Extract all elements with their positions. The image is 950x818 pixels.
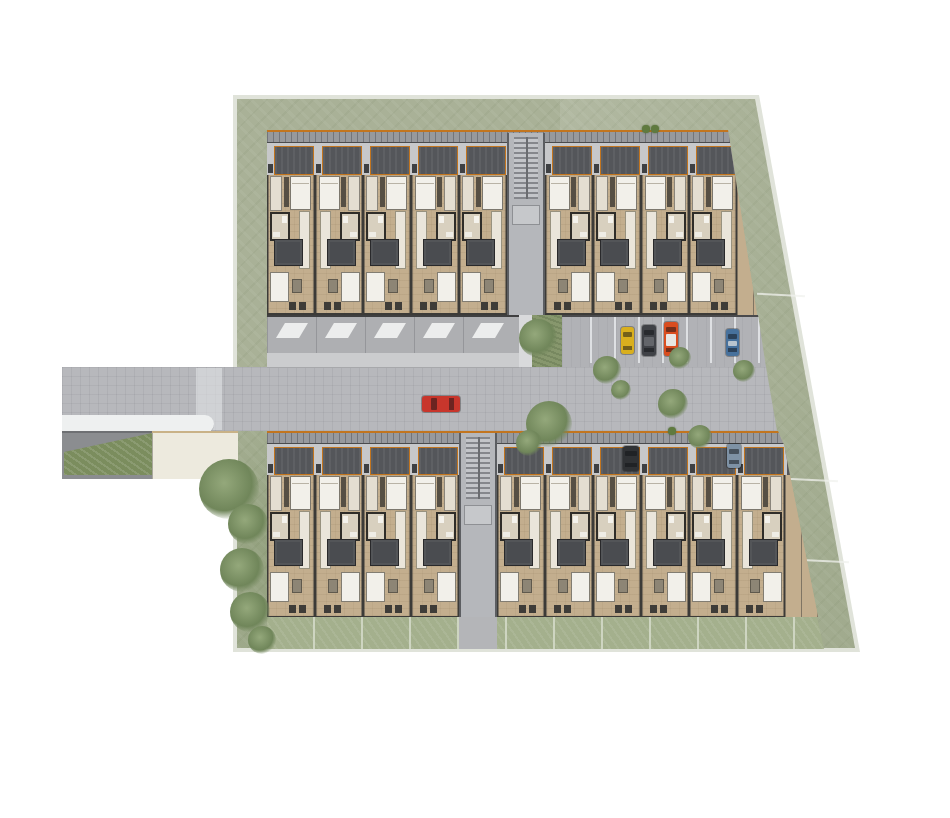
unit-top-strip bbox=[366, 476, 378, 511]
carport-bay-slab bbox=[418, 146, 458, 175]
roof-plant bbox=[642, 125, 650, 133]
unit-chairs bbox=[519, 605, 536, 613]
unit-top-strip bbox=[578, 476, 590, 511]
unit-sofa bbox=[596, 572, 615, 602]
unit-court bbox=[653, 539, 682, 566]
carport-bay bbox=[737, 444, 785, 475]
tree bbox=[519, 319, 557, 357]
unit-wardrobe bbox=[667, 177, 672, 207]
unit-bed bbox=[741, 476, 762, 510]
south-carports bbox=[267, 444, 827, 475]
unit-top-strip bbox=[348, 476, 360, 511]
unit-bed bbox=[386, 176, 407, 210]
rowhouse-unit bbox=[315, 475, 363, 618]
unit-court bbox=[557, 239, 586, 266]
unit-court bbox=[423, 239, 452, 266]
unit-bath bbox=[666, 512, 686, 541]
unit-chairs bbox=[324, 605, 341, 613]
unit-top-strip bbox=[270, 476, 282, 511]
carport-post bbox=[316, 464, 321, 473]
unit-chairs bbox=[289, 302, 306, 310]
unit-chairs bbox=[385, 302, 402, 310]
carport-post bbox=[460, 164, 465, 173]
unit-sofa bbox=[667, 572, 686, 602]
unit-table bbox=[424, 579, 434, 593]
unit-chairs bbox=[420, 605, 437, 613]
carport-bay bbox=[641, 444, 689, 475]
parking-stall-line bbox=[590, 317, 592, 363]
unit-bath bbox=[462, 212, 482, 241]
rowhouse-unit bbox=[641, 175, 689, 315]
unit-chairs bbox=[650, 605, 667, 613]
unit-court bbox=[274, 239, 303, 266]
unit-sofa bbox=[462, 272, 481, 302]
unit-sofa bbox=[500, 572, 519, 602]
parking-car-gray bbox=[642, 325, 656, 356]
unit-top-strip bbox=[462, 176, 474, 211]
unit-court bbox=[423, 539, 452, 566]
unit-court bbox=[370, 239, 399, 266]
unit-wardrobe bbox=[571, 177, 576, 207]
unit-bed bbox=[290, 176, 311, 210]
unit-chairs bbox=[324, 302, 341, 310]
carport-post bbox=[546, 464, 551, 473]
stair-landing bbox=[464, 505, 492, 525]
tree bbox=[220, 548, 264, 592]
unit-top-strip bbox=[770, 476, 782, 511]
carport-bay-slab bbox=[466, 146, 506, 175]
unit-bath bbox=[270, 512, 290, 541]
unit-court bbox=[696, 239, 725, 266]
unit-wardrobe bbox=[514, 477, 519, 507]
unit-court bbox=[600, 539, 629, 566]
rowhouse-unit bbox=[545, 475, 593, 618]
car-windshield bbox=[729, 449, 739, 454]
rowhouse-unit bbox=[315, 175, 363, 315]
unit-wardrobe bbox=[284, 477, 289, 507]
rowhouse-unit bbox=[459, 175, 507, 315]
unit-sofa bbox=[763, 572, 782, 602]
carport-bay-slab bbox=[744, 447, 784, 475]
unit-bed bbox=[712, 476, 733, 510]
unit-table bbox=[328, 579, 338, 593]
unit-top-strip bbox=[500, 476, 512, 511]
carport-post bbox=[594, 464, 599, 473]
carport-car-dark bbox=[623, 446, 639, 471]
rowhouse-unit bbox=[363, 475, 411, 618]
unit-wardrobe bbox=[284, 177, 289, 207]
rowhouse-unit bbox=[545, 175, 593, 315]
carport-bay bbox=[411, 143, 459, 175]
car-rear-glass bbox=[644, 348, 654, 352]
unit-bath bbox=[436, 212, 456, 241]
car-windshield bbox=[728, 334, 737, 339]
unit-bed bbox=[520, 476, 541, 510]
carport-post bbox=[690, 164, 695, 173]
parking-stall-line bbox=[638, 317, 640, 363]
unit-wardrobe bbox=[437, 477, 442, 507]
unit-wardrobe bbox=[437, 177, 442, 207]
unit-sofa bbox=[596, 272, 615, 302]
south-building bbox=[267, 431, 827, 617]
unit-sofa bbox=[366, 572, 385, 602]
unit-chairs bbox=[711, 605, 728, 613]
unit-bed bbox=[482, 176, 503, 210]
unit-bath bbox=[596, 212, 616, 241]
carport-car-blue bbox=[727, 444, 741, 468]
car-roof bbox=[728, 341, 737, 346]
rowhouse-unit bbox=[497, 475, 545, 618]
unit-chairs bbox=[711, 302, 728, 310]
unit-court bbox=[557, 539, 586, 566]
carport-bay-slab bbox=[322, 447, 362, 475]
garage-door bbox=[472, 323, 504, 338]
carport-bay bbox=[315, 143, 363, 175]
unit-top-strip bbox=[578, 176, 590, 211]
unit-bath bbox=[340, 212, 360, 241]
parking-stall-line bbox=[614, 317, 616, 363]
rowhouse-unit bbox=[267, 475, 315, 618]
garage-bay bbox=[365, 317, 414, 355]
carport-post bbox=[498, 464, 503, 473]
unit-sofa bbox=[341, 572, 360, 602]
carport-bay-slab bbox=[274, 146, 314, 175]
carport-bay-slab bbox=[552, 447, 592, 475]
unit-court bbox=[653, 239, 682, 266]
carport-post bbox=[364, 164, 369, 173]
unit-bed bbox=[645, 476, 666, 510]
carport-bay bbox=[459, 143, 507, 175]
unit-bath bbox=[692, 212, 712, 241]
carport-bay bbox=[315, 444, 363, 475]
roof-plant bbox=[651, 125, 659, 133]
unit-bed bbox=[415, 476, 436, 510]
unit-bath bbox=[762, 512, 782, 541]
carport-bay bbox=[267, 444, 315, 475]
unit-table bbox=[522, 579, 532, 593]
car-rear-glass bbox=[729, 460, 739, 464]
south-interior bbox=[267, 475, 827, 618]
unit-court bbox=[466, 239, 495, 266]
unit-table bbox=[618, 579, 628, 593]
tree bbox=[248, 626, 276, 654]
unit-sofa bbox=[692, 272, 711, 302]
unit-wardrobe bbox=[380, 177, 385, 207]
unit-sofa bbox=[366, 272, 385, 302]
parking-car-blue bbox=[726, 329, 739, 356]
unit-bed bbox=[645, 176, 666, 210]
rowhouse-unit bbox=[689, 175, 737, 315]
unit-bath bbox=[340, 512, 360, 541]
carport-bay-slab bbox=[648, 146, 688, 175]
roof-plant bbox=[668, 427, 676, 435]
carport-bay-slab bbox=[322, 146, 362, 175]
unit-bed bbox=[319, 476, 340, 510]
unit-bed bbox=[616, 176, 637, 210]
carport-bay-slab bbox=[552, 146, 592, 175]
north-building bbox=[267, 130, 758, 315]
unit-top-strip bbox=[596, 176, 608, 211]
car-rear-glass bbox=[449, 398, 454, 410]
south-stairwell bbox=[459, 433, 497, 617]
unit-bath bbox=[500, 512, 520, 541]
garage-door bbox=[374, 323, 406, 338]
unit-table bbox=[714, 279, 724, 293]
unit-table bbox=[654, 279, 664, 293]
unit-sofa bbox=[341, 272, 360, 302]
unit-table bbox=[328, 279, 338, 293]
unit-sofa bbox=[437, 272, 456, 302]
north-stairwell bbox=[507, 133, 545, 315]
carport-post bbox=[412, 164, 417, 173]
carport-bay bbox=[363, 143, 411, 175]
garage-bay bbox=[414, 317, 463, 355]
garage-door bbox=[423, 323, 455, 338]
unit-table bbox=[714, 579, 724, 593]
unit-top-strip bbox=[444, 176, 456, 211]
unit-bed bbox=[712, 176, 733, 210]
stair-treads bbox=[514, 137, 538, 199]
garage-door bbox=[276, 323, 308, 338]
unit-top-strip bbox=[674, 176, 686, 211]
unit-chairs bbox=[420, 302, 437, 310]
rowhouse-unit bbox=[411, 475, 459, 618]
unit-table bbox=[484, 279, 494, 293]
unit-chairs bbox=[481, 302, 498, 310]
unit-sofa bbox=[667, 272, 686, 302]
south-garden-path bbox=[459, 617, 497, 649]
unit-table bbox=[558, 279, 568, 293]
unit-bath bbox=[270, 212, 290, 241]
car-rear-glass bbox=[625, 463, 637, 467]
unit-sofa bbox=[571, 572, 590, 602]
car-windshield bbox=[431, 398, 437, 410]
rowhouse-unit bbox=[267, 175, 315, 315]
rowhouse-unit bbox=[641, 475, 689, 618]
garage-door bbox=[325, 323, 357, 338]
unit-wardrobe bbox=[763, 477, 768, 507]
garage-row bbox=[267, 315, 519, 355]
garage-bay bbox=[267, 317, 316, 355]
unit-chairs bbox=[554, 605, 571, 613]
unit-table bbox=[750, 579, 760, 593]
carport-bay bbox=[593, 143, 641, 175]
unit-chairs bbox=[615, 605, 632, 613]
site-plan-canvas bbox=[0, 0, 950, 818]
unit-wardrobe bbox=[571, 477, 576, 507]
unit-wardrobe bbox=[380, 477, 385, 507]
carport-post bbox=[690, 464, 695, 473]
carport-bay bbox=[411, 444, 459, 475]
carport-bay bbox=[267, 143, 315, 175]
car-roof bbox=[644, 337, 654, 346]
carport-bay bbox=[689, 143, 737, 175]
unit-bed bbox=[549, 476, 570, 510]
tree bbox=[669, 347, 691, 369]
unit-bed bbox=[616, 476, 637, 510]
unit-chairs bbox=[385, 605, 402, 613]
carport-bay bbox=[363, 444, 411, 475]
tree bbox=[611, 380, 631, 400]
unit-wardrobe bbox=[341, 477, 346, 507]
unit-bed bbox=[290, 476, 311, 510]
stair-landing bbox=[512, 205, 540, 225]
rear-gardens bbox=[267, 617, 827, 649]
unit-bath bbox=[666, 212, 686, 241]
carport-bay-slab bbox=[418, 447, 458, 475]
parking-stall-line bbox=[710, 317, 712, 363]
unit-wardrobe bbox=[706, 177, 711, 207]
unit-bed bbox=[386, 476, 407, 510]
car-rear-glass bbox=[623, 346, 632, 350]
unit-table bbox=[654, 579, 664, 593]
unit-bath bbox=[366, 512, 386, 541]
unit-bath bbox=[570, 212, 590, 241]
unit-bath bbox=[570, 512, 590, 541]
garage-sidewalk bbox=[267, 353, 519, 368]
unit-wardrobe bbox=[476, 177, 481, 207]
unit-top-strip bbox=[270, 176, 282, 211]
unit-top-strip bbox=[674, 476, 686, 511]
carport-post bbox=[268, 164, 273, 173]
carport-post bbox=[412, 464, 417, 473]
carport-bay-slab bbox=[370, 447, 410, 475]
unit-table bbox=[558, 579, 568, 593]
unit-table bbox=[618, 279, 628, 293]
unit-top-strip bbox=[692, 176, 704, 211]
carport-bay-slab bbox=[274, 447, 314, 475]
unit-chairs bbox=[289, 605, 306, 613]
unit-chairs bbox=[650, 302, 667, 310]
carport-bay-slab bbox=[600, 146, 640, 175]
unit-chairs bbox=[746, 605, 763, 613]
unit-sofa bbox=[270, 572, 289, 602]
tree bbox=[688, 425, 712, 449]
tree bbox=[658, 389, 688, 419]
unit-sofa bbox=[437, 572, 456, 602]
unit-top-strip bbox=[692, 476, 704, 511]
tree bbox=[228, 504, 268, 544]
unit-wardrobe bbox=[610, 177, 615, 207]
carport-bay bbox=[545, 444, 593, 475]
rowhouse-unit bbox=[737, 475, 785, 618]
unit-court bbox=[327, 239, 356, 266]
unit-sofa bbox=[571, 272, 590, 302]
unit-table bbox=[292, 579, 302, 593]
car-windshield bbox=[623, 332, 632, 337]
rowhouse-unit bbox=[411, 175, 459, 315]
unit-court bbox=[504, 539, 533, 566]
car-windshield bbox=[644, 330, 654, 335]
carport-bay bbox=[545, 143, 593, 175]
car-windshield bbox=[625, 451, 637, 456]
unit-top-strip bbox=[596, 476, 608, 511]
rowhouse-unit bbox=[363, 175, 411, 315]
garage-bay bbox=[316, 317, 365, 355]
unit-chairs bbox=[615, 302, 632, 310]
unit-wardrobe bbox=[610, 477, 615, 507]
unit-top-strip bbox=[444, 476, 456, 511]
unit-court bbox=[749, 539, 778, 566]
unit-court bbox=[327, 539, 356, 566]
unit-court bbox=[696, 539, 725, 566]
tree bbox=[516, 430, 542, 456]
street-car-red bbox=[422, 396, 460, 412]
unit-wardrobe bbox=[706, 477, 711, 507]
garage-bay bbox=[463, 317, 512, 355]
car-windshield bbox=[666, 327, 676, 332]
rowhouse-unit bbox=[593, 175, 641, 315]
parking-car-yellow bbox=[621, 327, 634, 354]
tree bbox=[733, 360, 755, 382]
unit-sofa bbox=[270, 272, 289, 302]
stair-treads bbox=[466, 437, 490, 499]
carport-post bbox=[642, 464, 647, 473]
unit-court bbox=[274, 539, 303, 566]
unit-bath bbox=[596, 512, 616, 541]
unit-table bbox=[292, 279, 302, 293]
carport-bay bbox=[641, 143, 689, 175]
unit-top-strip bbox=[348, 176, 360, 211]
unit-court bbox=[370, 539, 399, 566]
unit-table bbox=[388, 279, 398, 293]
unit-table bbox=[388, 579, 398, 593]
rowhouse-unit bbox=[593, 475, 641, 618]
carport-post bbox=[642, 164, 647, 173]
car-rear-glass bbox=[728, 348, 737, 352]
unit-bed bbox=[319, 176, 340, 210]
unit-bath bbox=[692, 512, 712, 541]
unit-bed bbox=[415, 176, 436, 210]
unit-wardrobe bbox=[341, 177, 346, 207]
rowhouse-unit bbox=[689, 475, 737, 618]
unit-bath bbox=[436, 512, 456, 541]
car-roof bbox=[666, 334, 676, 346]
carport-bay-slab bbox=[370, 146, 410, 175]
unit-table bbox=[424, 279, 434, 293]
unit-court bbox=[600, 239, 629, 266]
unit-sofa bbox=[692, 572, 711, 602]
unit-wardrobe bbox=[667, 477, 672, 507]
unit-top-strip bbox=[366, 176, 378, 211]
carport-post bbox=[268, 464, 273, 473]
unit-bed bbox=[549, 176, 570, 210]
carport-bay-slab bbox=[696, 146, 736, 175]
unit-bath bbox=[366, 212, 386, 241]
carport-post bbox=[364, 464, 369, 473]
carport-bay-slab bbox=[648, 447, 688, 475]
carport-post bbox=[594, 164, 599, 173]
unit-chairs bbox=[554, 302, 571, 310]
carport-post bbox=[316, 164, 321, 173]
carport-post bbox=[546, 164, 551, 173]
